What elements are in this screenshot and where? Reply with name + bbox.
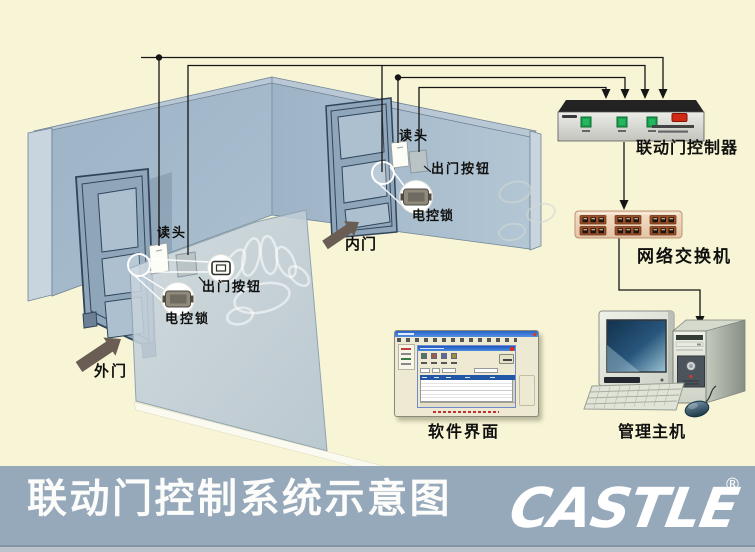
diagram-canvas: [0, 0, 755, 470]
door-foot-left: [83, 312, 97, 328]
close-icon: [533, 333, 536, 336]
controller-label: 联动门控制器: [636, 141, 738, 157]
input-field: [442, 368, 456, 373]
junction-dot: [156, 54, 162, 60]
logo-text: CASTLE: [505, 477, 744, 541]
window-titlebar: [395, 331, 538, 337]
status-bar: [420, 402, 515, 407]
exit-button-icon: [409, 150, 428, 173]
banner-title: 联动门控制系统示意图: [27, 479, 452, 519]
menu-bar: [397, 338, 517, 342]
toolbar-button: [441, 353, 448, 364]
registered-mark: ®: [724, 475, 741, 495]
input-field: [420, 368, 430, 373]
left-wall-end-cap: [28, 128, 52, 301]
outer-door-exit-button-label: 出门按钮: [202, 280, 262, 293]
outer-door-reader-label: 读头: [157, 226, 187, 239]
input-field: [432, 368, 440, 373]
action-button: [499, 354, 514, 364]
close-icon: [510, 347, 514, 351]
switch-label: 网络交换机: [637, 248, 732, 265]
toolbar-button: [451, 353, 458, 364]
host-label: 管理主机: [618, 425, 686, 441]
outer-door-lock-label: 电控锁: [165, 312, 210, 325]
input-field: [474, 368, 498, 373]
junction-dot: [395, 74, 401, 80]
child-window: [417, 345, 516, 408]
scrollbar: [512, 380, 515, 402]
network-switch: [575, 211, 682, 238]
castle-logo: CASTLE ®: [488, 466, 750, 545]
software-label: 软件界面: [428, 425, 500, 441]
inner-door-reader-label: 读头: [399, 129, 429, 142]
toolbar-button: [421, 353, 428, 364]
software-screenshot: [394, 330, 539, 417]
controller-logo-text: [562, 115, 577, 118]
inner-door-exit-button-label: 出门按钮: [431, 162, 491, 175]
title-banner: 联动门控制系统示意图 CASTLE ®: [0, 466, 755, 545]
inner-door-lock-label: 电控锁: [412, 209, 454, 222]
arrowhead-icon: [641, 89, 650, 99]
inner-door-label: 内门: [345, 237, 377, 252]
tree-panel: [398, 344, 415, 370]
management-host: [584, 311, 745, 419]
footer-red-text: [433, 411, 499, 413]
schematic-diagram: 读头 出门按钮 电控锁 外门 读头 出门按钮 电控锁 内门 联动门控制器 网络交…: [0, 0, 755, 552]
group-box: [519, 375, 535, 406]
arrowhead-icon: [602, 89, 611, 99]
outer-door-label: 外门: [94, 364, 128, 379]
exit-button-icon: [176, 252, 197, 277]
controller-faceplate-text: [652, 125, 694, 128]
card-reader-icon: [391, 141, 409, 168]
power-switch-icon: [672, 114, 687, 122]
interlock-controller: [558, 100, 704, 141]
table-rows: [420, 380, 515, 402]
arrowhead-icon: [620, 200, 629, 210]
toolbar-button: [431, 353, 438, 364]
child-titlebar: [418, 346, 515, 351]
arrowhead-icon: [621, 89, 630, 99]
arrowhead-icon: [659, 89, 668, 99]
banner-bottom-edge: [0, 547, 755, 552]
